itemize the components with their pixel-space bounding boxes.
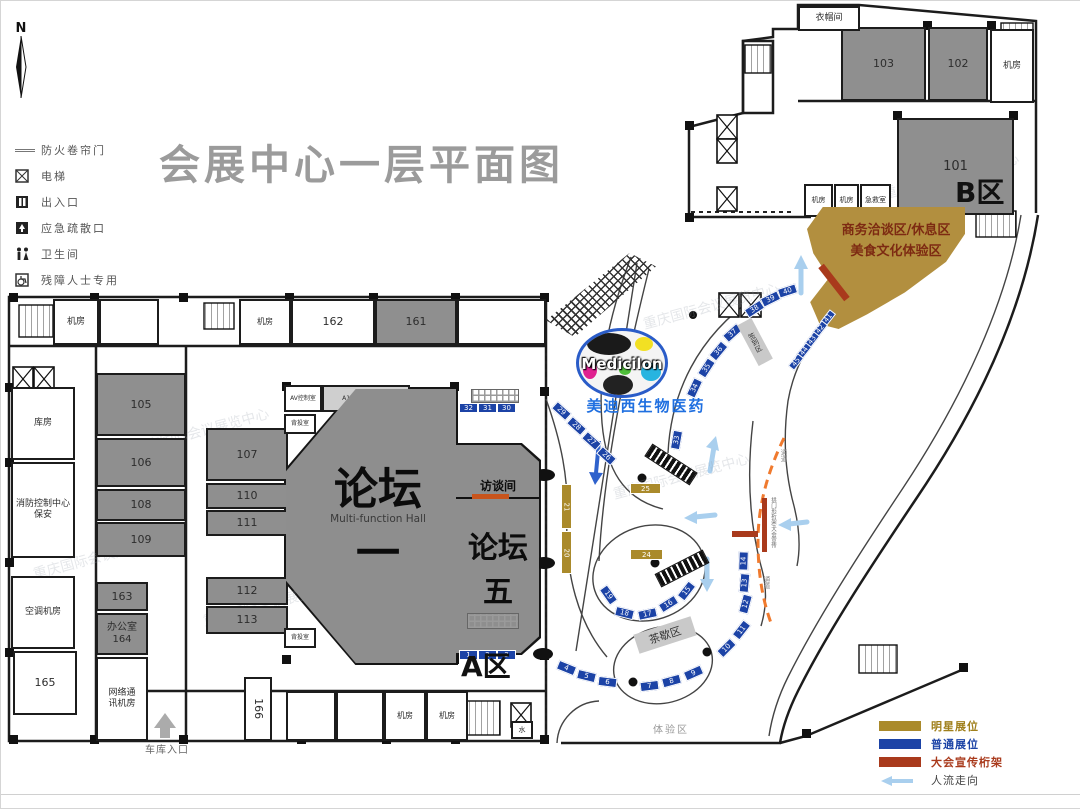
legend-label: 防火卷帘门 [41,142,106,158]
legend-row-fire-shutter: 防火卷帘门 [15,137,119,163]
north-compass: N [13,21,29,102]
legend-label: 卫生间 [41,246,80,262]
legend-row-entrance: 出入口 [15,189,119,215]
standard-booth-swatch [879,739,921,749]
legend-label: 大会宣传桁架 [931,754,1003,770]
fire-shutter-icon [15,149,41,152]
passage-label: 通道 [761,576,771,589]
compass-n-label: N [13,21,29,36]
logo-blob [603,375,633,395]
promo-truss [472,494,509,499]
legend-label: 应急疏散口 [41,220,106,236]
medicilon-logo: Medicilon [576,328,668,398]
logo-blob [587,333,631,355]
legend-label: 电梯 [41,168,67,184]
map-legend-top: 防火卷帘门 电梯 出入口 应急疏散口 卫生间 残障人士专用 [15,137,119,293]
legend-label: 人流走向 [931,772,979,788]
accessible-icon [15,273,41,287]
legend-label: 出入口 [41,194,80,210]
elevator-icon [15,169,41,183]
legend-label: 普通展位 [931,736,979,752]
restroom-icon [15,247,41,261]
legend-row-truss: 大会宣传桁架 [879,753,1003,771]
legend-row-elevator: 电梯 [15,163,119,189]
garage-entrance-label: 车库入口 [145,741,189,756]
garage-arrow-stem [160,727,170,738]
zone-b-label: B区 [955,171,1004,211]
truss-swatch [879,757,921,767]
legend-label: 明星展位 [931,718,979,734]
promo-truss [762,498,767,552]
emergency-exit-icon [15,221,41,235]
legend-row-standard-booth: 普通展位 [879,735,1003,753]
logo-blob [635,337,653,351]
passage-label: 通道 [778,449,788,462]
brand-name: 美迪西生物医药 [561,395,731,416]
legend-row-star-booth: 明星展位 [879,717,1003,735]
zone-a-label: A区 [461,645,511,685]
floor-plan-canvas: 重庆国际会议展览中心重庆国际会议展览中心重庆国际会议展览中心重庆国际会议展览中心… [0,0,1080,809]
star-booth-swatch [879,721,921,731]
page-title: 会展中心一层平面图 [159,131,564,191]
legend-row-accessible: 残障人士专用 [15,267,119,293]
legend-row-flow: 人流走向 [879,771,1003,789]
truss-note-label: 拱门形桁架/大会宣传 [769,497,777,555]
flow-arrow-icon [879,775,921,785]
experience-area-label: 体验区 [653,721,689,736]
trusses-layer [1,1,1080,808]
entrance-icon [15,195,41,209]
garage-arrow-icon [154,713,176,728]
compass-needle-icon [13,36,29,98]
legend-row-restroom: 卫生间 [15,241,119,267]
legend-row-emergency-exit: 应急疏散口 [15,215,119,241]
promo-truss [818,264,849,301]
promo-truss [732,531,758,537]
legend-label: 残障人士专用 [41,272,119,288]
medicilon-wordmark: Medicilon [579,355,665,373]
map-legend-bottom: 明星展位 普通展位 大会宣传桁架 人流走向 [879,717,1003,789]
